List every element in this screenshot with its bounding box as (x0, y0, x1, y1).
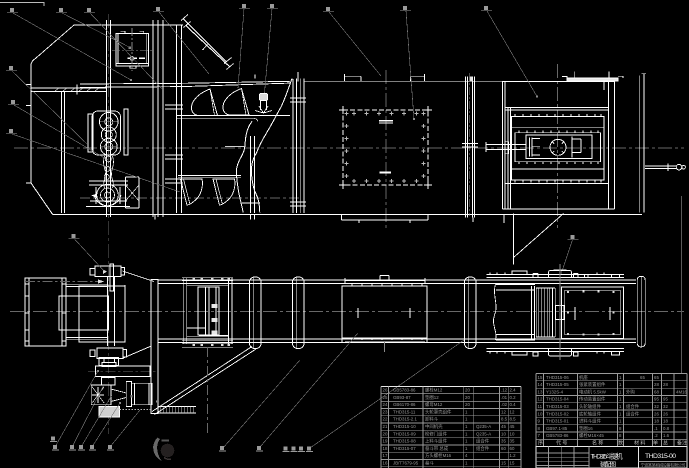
svg-text:组合件: 组合件 (626, 410, 640, 417)
svg-text:GB6170-86: GB6170-86 (393, 402, 416, 407)
svg-text:1: 1 (619, 411, 622, 416)
svg-text:35: 35 (501, 439, 506, 444)
svg-text:Y132S-4: Y132S-4 (546, 389, 564, 394)
svg-text:.12: .12 (501, 388, 508, 393)
svg-text:7: 7 (538, 433, 541, 438)
svg-text:总: 总 (663, 440, 668, 447)
svg-text:35: 35 (510, 439, 515, 444)
svg-text:95: 95 (663, 397, 668, 402)
svg-text:1: 1 (465, 409, 468, 414)
svg-text:1: 1 (465, 446, 468, 451)
svg-text:12: 12 (510, 409, 515, 414)
svg-text:1.6: 1.6 (663, 433, 670, 438)
svg-text:THD315-09: THD315-09 (393, 431, 416, 436)
svg-text:THD315-00: THD315-00 (645, 453, 676, 460)
svg-text:THD315-05: THD315-05 (546, 382, 569, 387)
svg-text:22: 22 (383, 417, 388, 422)
svg-text:单: 单 (653, 440, 658, 447)
svg-text:上料斗组件: 上料斗组件 (425, 438, 448, 445)
svg-text:THD315-2.1: THD315-2.1 (393, 417, 417, 422)
svg-text:THD315-06: THD315-06 (546, 375, 569, 380)
svg-text:65: 65 (640, 375, 645, 380)
svg-text:THD315-11: THD315-11 (393, 409, 416, 414)
svg-text:1: 1 (619, 404, 622, 409)
svg-text:头轮罩壳组件: 头轮罩壳组件 (425, 408, 452, 415)
svg-text:24: 24 (383, 402, 388, 407)
svg-text:32: 32 (654, 404, 659, 409)
svg-text:20: 20 (465, 402, 470, 407)
svg-text:GB5783-86: GB5783-86 (393, 388, 416, 393)
svg-text:THD315-08: THD315-08 (393, 439, 416, 444)
svg-text:1: 1 (619, 397, 622, 402)
svg-text:张紧装置组件: 张紧装置组件 (579, 381, 606, 388)
svg-text:68: 68 (654, 389, 659, 394)
svg-text:数: 数 (618, 440, 623, 447)
svg-text:10: 10 (510, 431, 515, 436)
svg-text:THD315-04: THD315-04 (546, 397, 569, 402)
svg-text:.1: .1 (654, 426, 658, 431)
svg-text:底轮轴组件: 底轮轴组件 (579, 410, 602, 417)
svg-text:19: 19 (383, 439, 388, 444)
svg-text:10: 10 (538, 411, 543, 416)
svg-text:进料斗组件: 进料斗组件 (579, 418, 602, 425)
svg-text:名 称: 名 称 (592, 440, 603, 447)
svg-text:GB5783-86: GB5783-86 (546, 433, 569, 438)
svg-text:.02: .02 (501, 402, 508, 407)
svg-text:.01: .01 (501, 395, 508, 400)
svg-text:1: 1 (619, 375, 622, 380)
svg-text:21: 21 (383, 424, 388, 429)
svg-text:垫圈12: 垫圈12 (425, 394, 439, 401)
svg-text:9: 9 (538, 419, 541, 424)
svg-text:18: 18 (383, 446, 388, 451)
svg-text:26: 26 (663, 411, 668, 416)
svg-text:THD315斗提机: THD315斗提机 (591, 452, 623, 461)
svg-text:Q235-A: Q235-A (476, 424, 491, 429)
svg-text:1: 1 (619, 382, 622, 387)
svg-text:10: 10 (501, 431, 506, 436)
svg-text:1: 1 (465, 424, 468, 429)
svg-text:传动装置组件: 传动装置组件 (579, 396, 606, 403)
svg-text:1: 1 (619, 389, 622, 394)
svg-text:26: 26 (383, 388, 388, 393)
svg-text:11: 11 (538, 404, 543, 409)
svg-text:备注: 备注 (677, 440, 687, 447)
svg-text:25: 25 (383, 395, 388, 400)
svg-text:13: 13 (538, 389, 543, 394)
svg-text:THD315-10: THD315-10 (393, 424, 416, 429)
svg-text:26: 26 (654, 411, 659, 416)
svg-text:THD315-07: THD315-07 (393, 446, 416, 451)
svg-text:1: 1 (619, 419, 622, 424)
svg-text:4: 4 (465, 453, 468, 458)
svg-text:垫圈16: 垫圈16 (579, 425, 593, 432)
svg-text:.2: .2 (654, 433, 658, 438)
svg-text:18: 18 (654, 419, 659, 424)
svg-text:8.5: 8.5 (501, 417, 508, 422)
svg-text:1.2: 1.2 (510, 453, 517, 458)
svg-text:65: 65 (654, 375, 659, 380)
svg-text:0.4: 0.4 (510, 402, 517, 407)
svg-text:12: 12 (501, 409, 506, 414)
svg-text:60: 60 (501, 446, 506, 451)
svg-text:卸料斗: 卸料斗 (425, 416, 439, 423)
svg-text:GB93-87: GB93-87 (393, 395, 411, 400)
svg-text:20: 20 (383, 431, 388, 436)
svg-text:32: 32 (663, 404, 668, 409)
svg-text:16: 16 (383, 461, 388, 466)
svg-text:95: 95 (654, 397, 659, 402)
svg-text:方头螺栓M16: 方头螺栓M16 (425, 452, 452, 459)
svg-text:THD315-01: THD315-01 (546, 419, 569, 424)
svg-text:机座: 机座 (579, 374, 588, 381)
svg-text:17: 17 (383, 453, 388, 458)
svg-text:头轮轴组件: 头轮轴组件 (579, 403, 602, 410)
svg-text:THD315-02: THD315-02 (546, 411, 569, 416)
svg-text:序: 序 (538, 440, 543, 447)
svg-text:Q235-A: Q235-A (476, 431, 491, 436)
svg-text:20: 20 (465, 395, 470, 400)
svg-text:18: 18 (663, 419, 668, 424)
svg-text:23: 23 (383, 409, 388, 414)
svg-text:8: 8 (619, 426, 622, 431)
svg-text:THD315-03: THD315-03 (546, 404, 569, 409)
svg-text:0.8: 0.8 (663, 426, 670, 431)
svg-text:代 号: 代 号 (556, 440, 567, 447)
svg-text:45: 45 (501, 424, 506, 429)
svg-text:14: 14 (538, 382, 543, 387)
svg-text:2.4: 2.4 (510, 388, 517, 393)
svg-text:8.5: 8.5 (510, 417, 517, 422)
svg-text:15: 15 (501, 461, 506, 466)
svg-text:螺栓M16×45: 螺栓M16×45 (579, 432, 604, 439)
svg-text:45: 45 (510, 424, 515, 429)
svg-text:8: 8 (619, 433, 622, 438)
svg-text:畚斗: 畚斗 (425, 460, 434, 467)
svg-text:12: 12 (538, 397, 543, 402)
svg-text:宁波某某机械设备有限公司: 宁波某某机械设备有限公司 (641, 462, 686, 468)
svg-text:1: 1 (465, 439, 468, 444)
svg-text:0.2: 0.2 (510, 395, 517, 400)
svg-text:60: 60 (510, 446, 515, 451)
svg-text:4M16: 4M16 (676, 389, 688, 394)
svg-text:组合件: 组合件 (626, 403, 640, 410)
svg-text:JB/T7679-95: JB/T7679-95 (393, 461, 419, 466)
svg-text:外购: 外购 (626, 388, 635, 395)
svg-text:GB97.1-85: GB97.1-85 (546, 426, 568, 431)
svg-text:15: 15 (510, 461, 515, 466)
svg-text:螺栓M12: 螺栓M12 (425, 387, 443, 394)
svg-text:装配图: 装配图 (600, 461, 616, 468)
svg-text:20: 20 (465, 388, 470, 393)
svg-text:8: 8 (538, 426, 541, 431)
svg-text:畚斗带 总成: 畚斗带 总成 (425, 445, 449, 452)
svg-text:1: 1 (465, 461, 468, 466)
svg-text:螺母M12: 螺母M12 (425, 401, 443, 408)
svg-text:28: 28 (663, 382, 668, 387)
svg-text:检修门组件: 检修门组件 (425, 430, 448, 437)
svg-text:组合件: 组合件 (476, 445, 490, 452)
svg-text:1: 1 (465, 417, 468, 422)
svg-text:材 料: 材 料 (634, 440, 645, 447)
svg-text:1: 1 (465, 431, 468, 436)
svg-text:15: 15 (538, 375, 543, 380)
svg-text:28: 28 (654, 382, 659, 387)
svg-text:组合件: 组合件 (476, 438, 490, 445)
svg-text:中间机壳: 中间机壳 (425, 423, 443, 430)
svg-text:电动机 5.5kW: 电动机 5.5kW (579, 388, 607, 395)
